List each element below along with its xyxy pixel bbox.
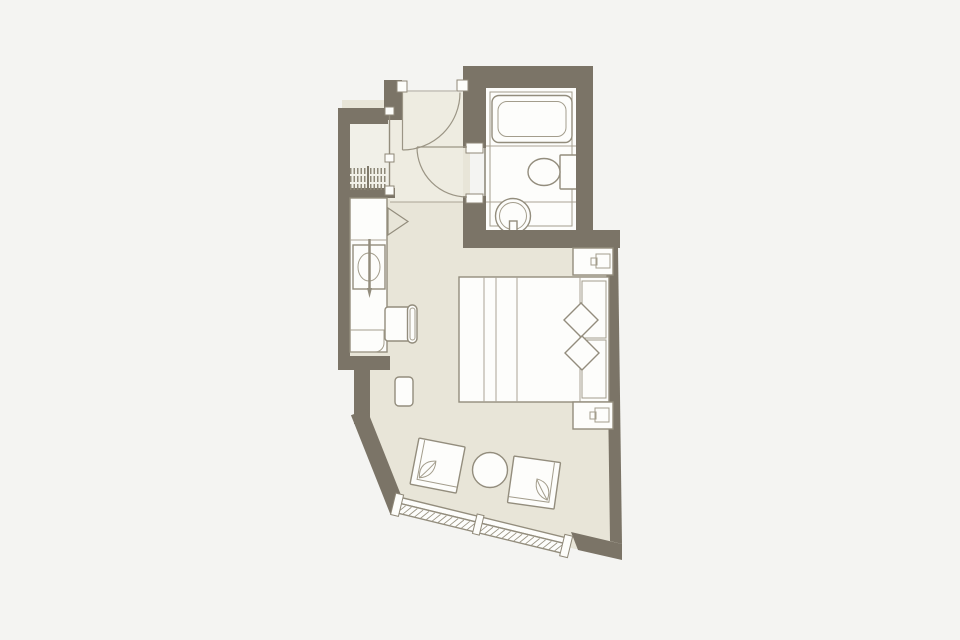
armchair-left [410, 438, 465, 493]
floor-plan-canvas [0, 0, 960, 640]
wall-left-mid [338, 188, 350, 370]
armchair-right [507, 456, 560, 509]
nightstand-bottom [573, 402, 613, 429]
entry-right-jamb [457, 80, 468, 91]
wall-bath-top [463, 66, 593, 88]
desk-chair-back [408, 305, 418, 343]
toilet-tank [560, 155, 577, 189]
closet-cap-top [385, 107, 394, 115]
bathtub [492, 96, 572, 143]
nightstand-top [573, 248, 613, 275]
floor-plan-page [0, 0, 960, 640]
toilet-bowl [528, 159, 560, 186]
round-coffee-table [473, 453, 508, 488]
luggage-stool [395, 377, 413, 406]
wall-bath-right [576, 66, 593, 248]
double-bed [459, 277, 609, 402]
wall-bath-bottom [463, 230, 620, 248]
bath-door-bottom-jamb [466, 194, 483, 203]
wall-left-upper [338, 108, 350, 200]
entry-left-jamb [397, 81, 407, 92]
closet-cap-bottom [385, 186, 394, 195]
bath-door-top-jamb [466, 143, 483, 153]
closet-cap-mid [385, 154, 394, 162]
